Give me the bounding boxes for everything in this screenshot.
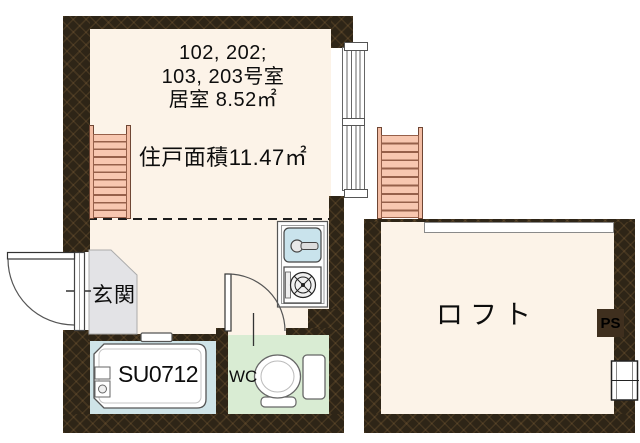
- entrance-label: 玄関: [92, 279, 136, 309]
- window-middle-rail: [343, 119, 365, 126]
- loft-window: [611, 361, 639, 400]
- burner-center: [301, 283, 305, 287]
- bath-door-handle: [141, 333, 172, 342]
- stove-control: [286, 272, 291, 298]
- wc-door-swing-arc: [228, 274, 285, 331]
- room-numbers-line2: 103, 203号室: [118, 66, 328, 90]
- bath-unit-label: SU0712: [108, 361, 208, 388]
- entrance-door-swing-arc: [8, 259, 74, 325]
- unit-area-label: 住戸面積11.47㎡: [113, 140, 333, 172]
- main-room-window: [343, 43, 368, 198]
- floor-plan-canvas: PS SB: [0, 0, 640, 443]
- toilet-tank: [303, 355, 325, 399]
- room-info-block: 102, 202; 103, 203号室 居室 8.52㎡: [118, 42, 328, 113]
- loft-label: ロフト: [397, 293, 577, 332]
- room-numbers-line1: 102, 202;: [118, 42, 328, 66]
- wc-door-leaf: [225, 274, 231, 331]
- wc-door: [225, 274, 285, 346]
- window-top-cap: [345, 43, 368, 51]
- toilet: [255, 355, 326, 407]
- kitchen-unit: [278, 222, 328, 308]
- entrance-door-leaf: [8, 253, 75, 260]
- window-bottom-cap: [345, 190, 368, 198]
- wc-label: WC: [229, 367, 257, 387]
- bath-faucet-icon: [99, 385, 107, 393]
- faucet-handle-icon: [301, 243, 318, 250]
- room-area-label: 居室 8.52㎡: [118, 89, 328, 113]
